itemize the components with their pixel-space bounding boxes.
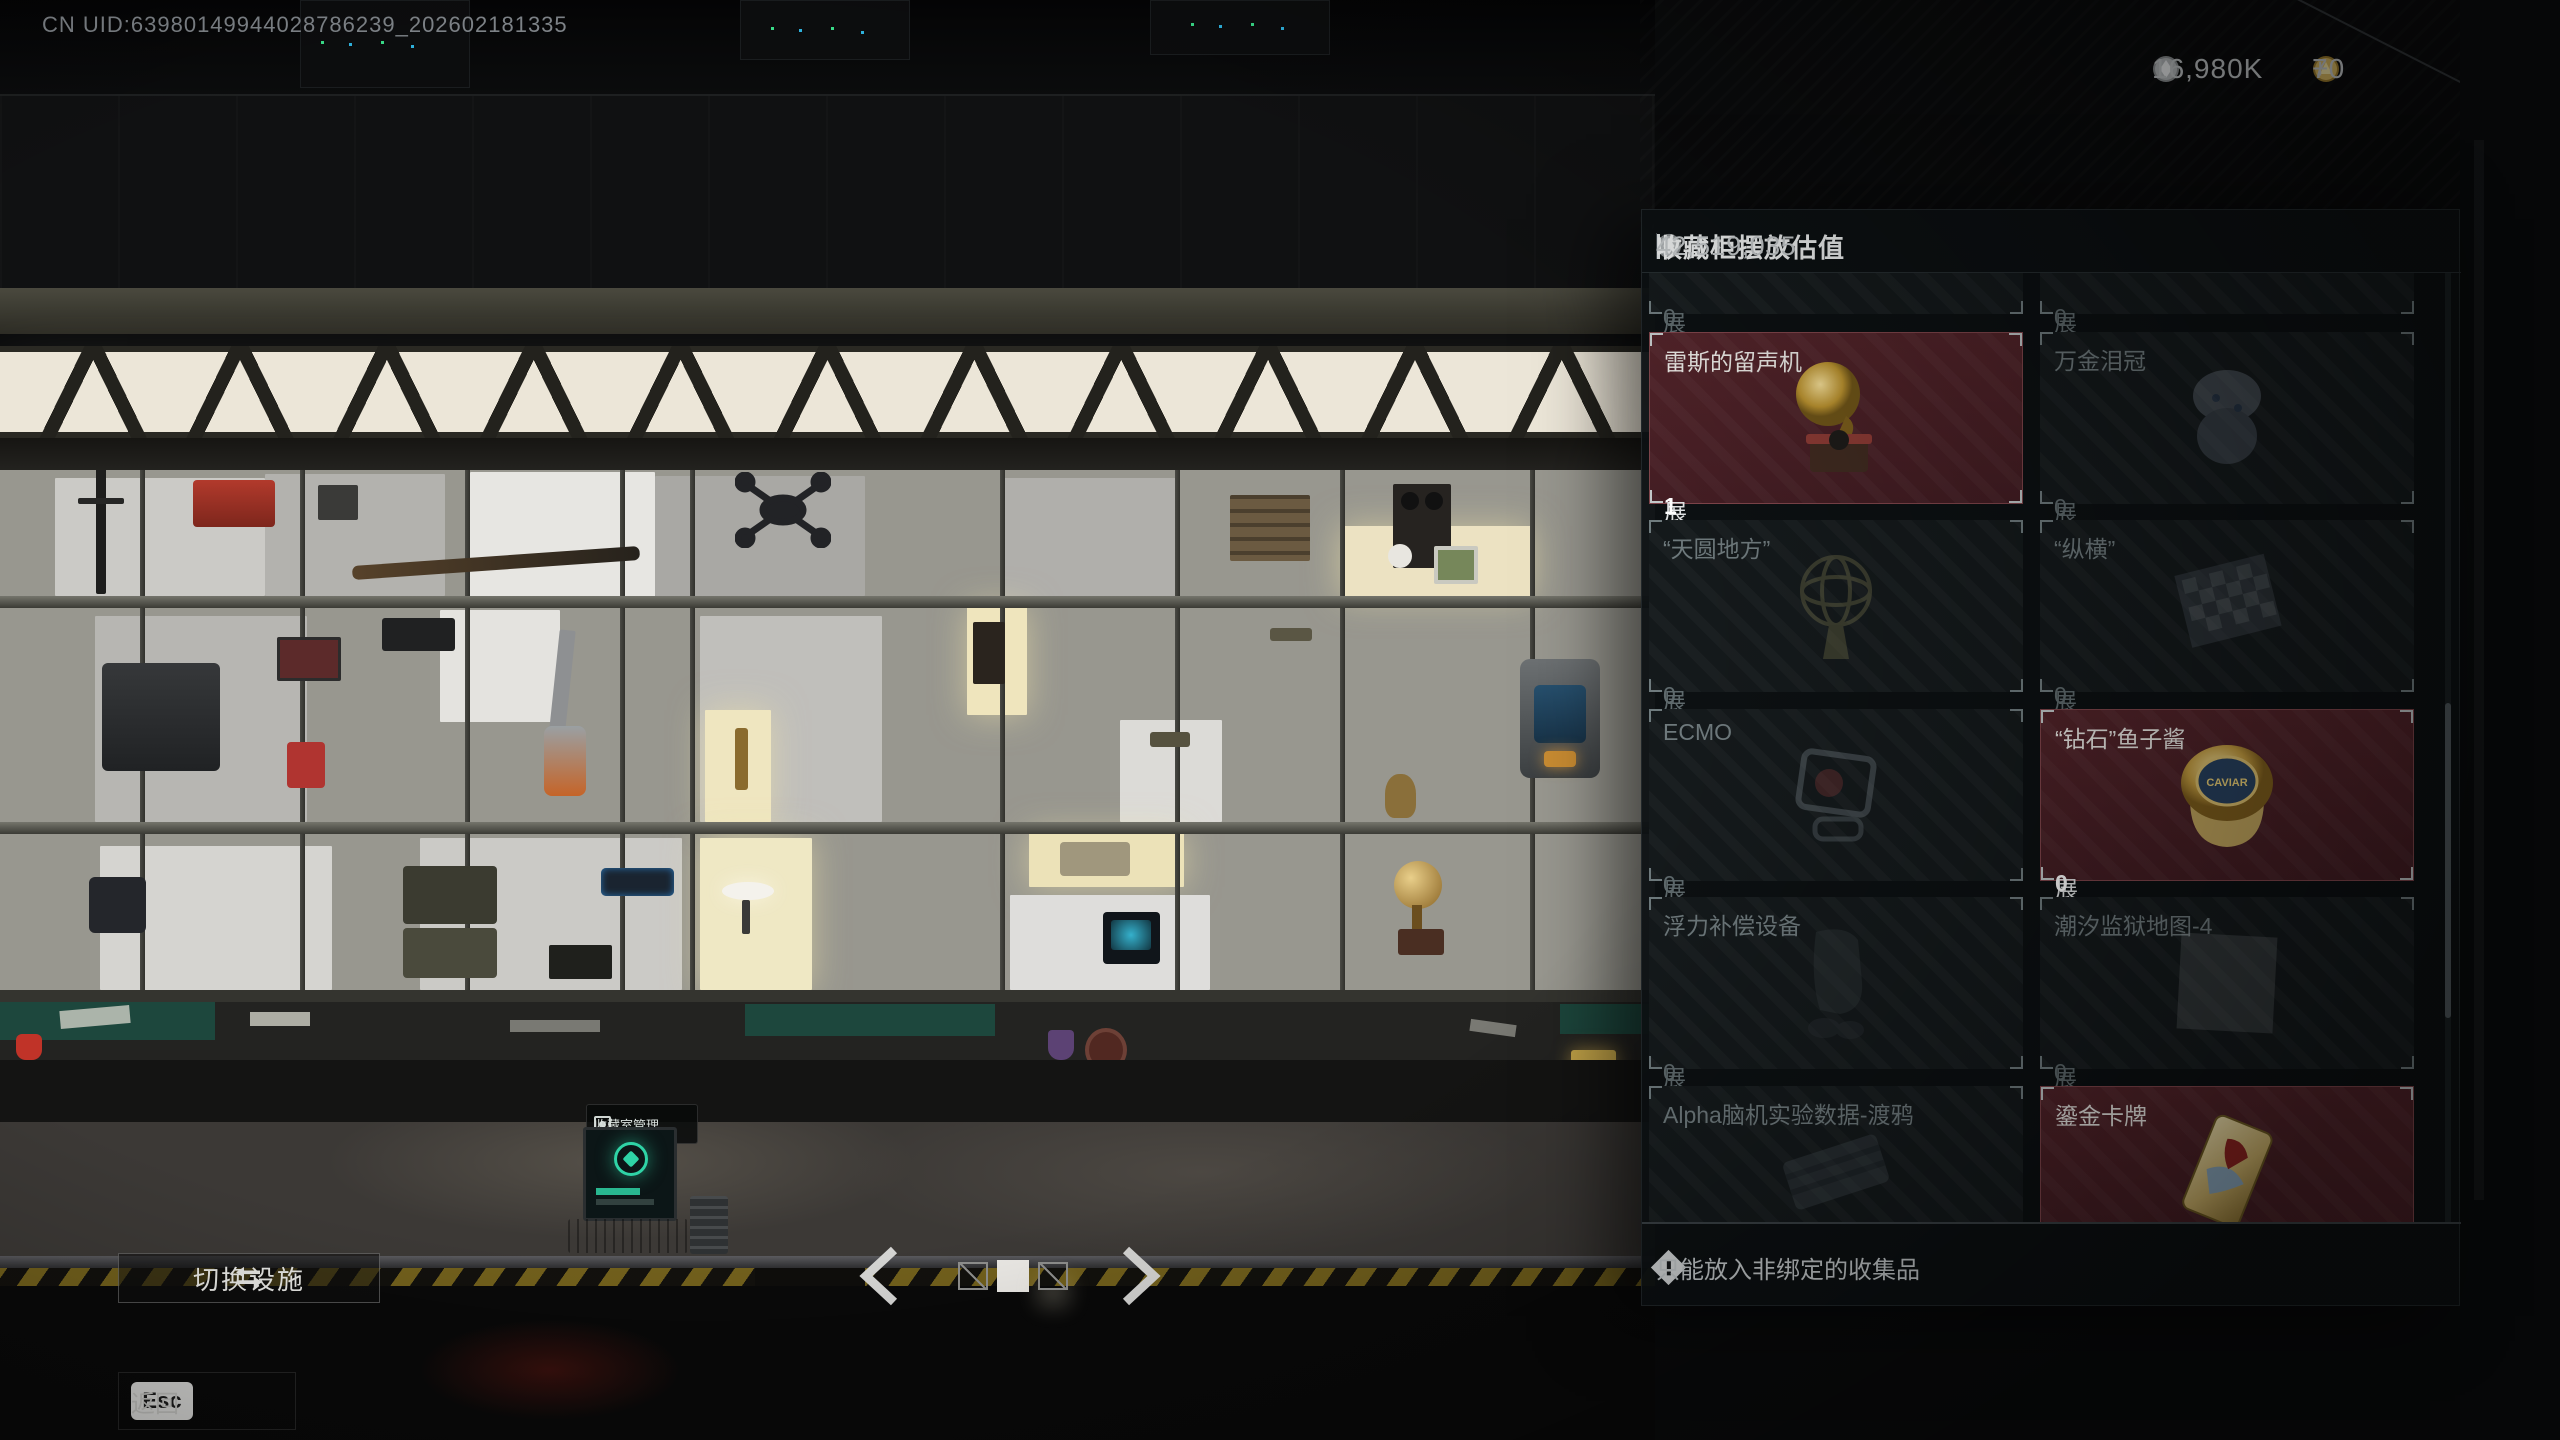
counter-face: [0, 1060, 1655, 1122]
shelf-item-tank-model: [1150, 732, 1190, 747]
page-dot-2-current[interactable]: [997, 1260, 1029, 1292]
data-crate-art: [1761, 1117, 1911, 1223]
collection-cabinet-panel: 收藏柜摆放估值 42,519,035 展位等级:0 展位等级:0: [1641, 209, 2460, 1306]
laptop-progress-bar: [596, 1188, 640, 1195]
shelf-item-gramophone: [1390, 859, 1453, 955]
counter-paper: [250, 1012, 310, 1026]
collection-slot-alpha-data[interactable]: Alpha脑机实验数据-渡鸦 展位等级:: [1649, 1086, 2023, 1223]
shelf-item-vacuum-body: [544, 726, 586, 796]
cabinet-post: [300, 470, 305, 1002]
shelf-item-cooler: [102, 663, 220, 771]
item-name: 万金泪冠: [2054, 342, 2146, 376]
ceiling-light-truss: [0, 346, 1655, 438]
silver-amount: 16,980K: [2152, 53, 2263, 85]
uid-watermark: CN UID:63980149944028786239_202602181335: [42, 12, 568, 38]
game-screen: 收藏室管理 切换设施 Esc 返回 CN UID:639801499440287…: [0, 0, 2560, 1440]
collection-slot[interactable]: 展位等级:0: [2040, 273, 2414, 314]
counter-paper: [510, 1020, 600, 1032]
cabinet-post: [1000, 470, 1005, 1002]
shelf-item-wine-bottle: [735, 728, 748, 790]
counter-paper: [1469, 1019, 1516, 1037]
item-name: “纵横”: [2054, 530, 2115, 564]
page-dot-1[interactable]: [958, 1262, 988, 1290]
wall-panel: [1000, 478, 1180, 596]
caviar-art: CAVIAR: [2162, 733, 2292, 857]
total-value: 42,519,035: [1656, 231, 1796, 262]
shadow-band: [0, 438, 1655, 470]
crown-art: [2172, 358, 2282, 478]
collection-slot-gramophone[interactable]: 雷斯的留声机 展位等级:1: [1649, 332, 2023, 504]
collection-slot-crown[interactable]: 万金泪冠 展位等级:0: [2040, 332, 2414, 504]
laptop-logo-icon: [614, 1142, 648, 1176]
gilded-card-art: [2167, 1107, 2287, 1223]
armillary-sphere-art: [1781, 541, 1891, 671]
red-glow: [420, 1320, 680, 1420]
shelf-item-red-device: [193, 480, 275, 527]
cabinet-post: [1340, 470, 1345, 1002]
shelf-beam: [0, 990, 1655, 1002]
panel-footer: 只能放入非绑定的收集品: [1656, 1242, 2436, 1292]
item-name: ECMO: [1663, 719, 1732, 746]
collection-slot-caviar[interactable]: “钻石”鱼子酱 CAVIAR 展位等级:0: [2040, 709, 2414, 881]
gramophone-art: [1776, 354, 1896, 482]
wall-panel-lit: [700, 838, 812, 990]
collection-slot-bcd[interactable]: 浮力补偿设备 展位等级:0: [1649, 897, 2023, 1069]
footer-divider: [1642, 1222, 2461, 1224]
map-art: [2177, 933, 2278, 1034]
top-right-wall: [1640, 0, 2560, 240]
shelf-item-dark-frame: [318, 485, 358, 520]
right-wall-strip: [2474, 140, 2484, 1200]
emblem-purple: [1048, 1030, 1074, 1060]
item-name: 鎏金卡牌: [2055, 1097, 2147, 1131]
collection-grid: 展位等级:0 展位等级:0 雷斯的留声机 展位等级:1: [1642, 273, 2461, 1223]
collection-slot-map[interactable]: 潮汐监狱地图-4 展位等级:0: [2040, 897, 2414, 1069]
item-name: “天圆地方”: [1663, 530, 1770, 564]
shelf-item-diving-lantern: [1520, 659, 1600, 778]
shelf-item-case-lid: [403, 866, 497, 924]
collection-slot-gilded-card[interactable]: 鎏金卡牌 展位等级:: [2040, 1086, 2414, 1223]
laptop-screen[interactable]: [583, 1127, 677, 1221]
hazard-gap: [755, 1268, 865, 1286]
shelf-item-camera: [382, 618, 455, 651]
support-beam: [0, 288, 1655, 334]
server-rack: [1150, 0, 1330, 55]
server-rack: [740, 0, 910, 60]
add-gold-button[interactable]: +: [2312, 53, 2329, 85]
panel-header: 收藏柜摆放估值 42,519,035: [1656, 226, 2436, 266]
shelf-item-jerrycan: [89, 877, 146, 933]
switch-facility-button[interactable]: 切换设施: [118, 1253, 380, 1303]
footer-note: 只能放入非绑定的收集品: [1656, 1250, 1920, 1285]
svg-text:CAVIAR: CAVIAR: [2206, 777, 2247, 789]
shelf-beam: [0, 822, 1655, 834]
prev-page-arrow[interactable]: [858, 1246, 900, 1306]
bcd-art: [1776, 918, 1896, 1048]
esc-hint[interactable]: Esc 返回: [118, 1372, 296, 1430]
collection-slot-armillary[interactable]: “天圆地方” 展位等级:0: [1649, 520, 2023, 692]
counter-top: [0, 1002, 1655, 1060]
floor: [0, 1122, 1655, 1262]
cabinet-post: [690, 470, 695, 1002]
panel-scrollbar[interactable]: [2445, 273, 2451, 1223]
esc-back-label: 返回: [131, 1384, 179, 1419]
laptop-keyboard[interactable]: [568, 1219, 688, 1253]
wall-panel: [440, 610, 560, 722]
shelf-item-sockets: [1060, 842, 1130, 876]
shelf-item-tank-model: [1270, 628, 1312, 641]
shelf-item-dark-box: [549, 945, 612, 979]
shelf-item-crate: [1230, 495, 1310, 561]
shelf-item-holo-device: [1103, 912, 1160, 964]
shelf-item-plaque: [973, 622, 1005, 684]
upper-wall: [0, 96, 1655, 290]
shelf-item-gold-rabbit: [1385, 774, 1416, 818]
ecmo-art: [1771, 735, 1901, 855]
wall-panel: [470, 472, 655, 598]
laptop-progress-track: [596, 1199, 654, 1205]
collection-slot-chessboard[interactable]: “纵横” 展位等级:0: [2040, 520, 2414, 692]
counter-mat: [745, 1004, 995, 1036]
shelf-item-clock: [1388, 544, 1412, 568]
display-cabinet-wall: [0, 470, 1655, 1002]
collection-slot[interactable]: 展位等级:0: [1649, 273, 2023, 314]
chessboard-art: [2152, 546, 2302, 666]
shelf-item-red-handheld: [287, 742, 325, 788]
next-page-arrow[interactable]: [1120, 1246, 1162, 1306]
page-dot-3[interactable]: [1038, 1262, 1068, 1290]
shelf-item-radio: [277, 637, 341, 681]
alarm-bell-icon: [16, 1034, 42, 1060]
shelf-item-rifle-vertical: [96, 470, 106, 594]
shelf-item-drone: [735, 472, 831, 548]
shelf-item-blue-device: [601, 868, 674, 896]
shelf-item-case-base: [403, 928, 497, 978]
shelf-item-rifle-crossbar: [78, 498, 124, 504]
collection-slot-ecmo[interactable]: ECMO 展位等级:0: [1649, 709, 2023, 881]
shelf-beam: [0, 596, 1655, 608]
shelf-item-green-frame: [1434, 546, 1478, 584]
card-reader: [690, 1196, 728, 1254]
shelf-item-dish-antenna: [722, 882, 774, 900]
switch-facility-label: 切换设施: [193, 1260, 305, 1297]
scrollbar-thumb[interactable]: [2445, 703, 2451, 1018]
shelf-item-dish-stand: [742, 900, 750, 934]
